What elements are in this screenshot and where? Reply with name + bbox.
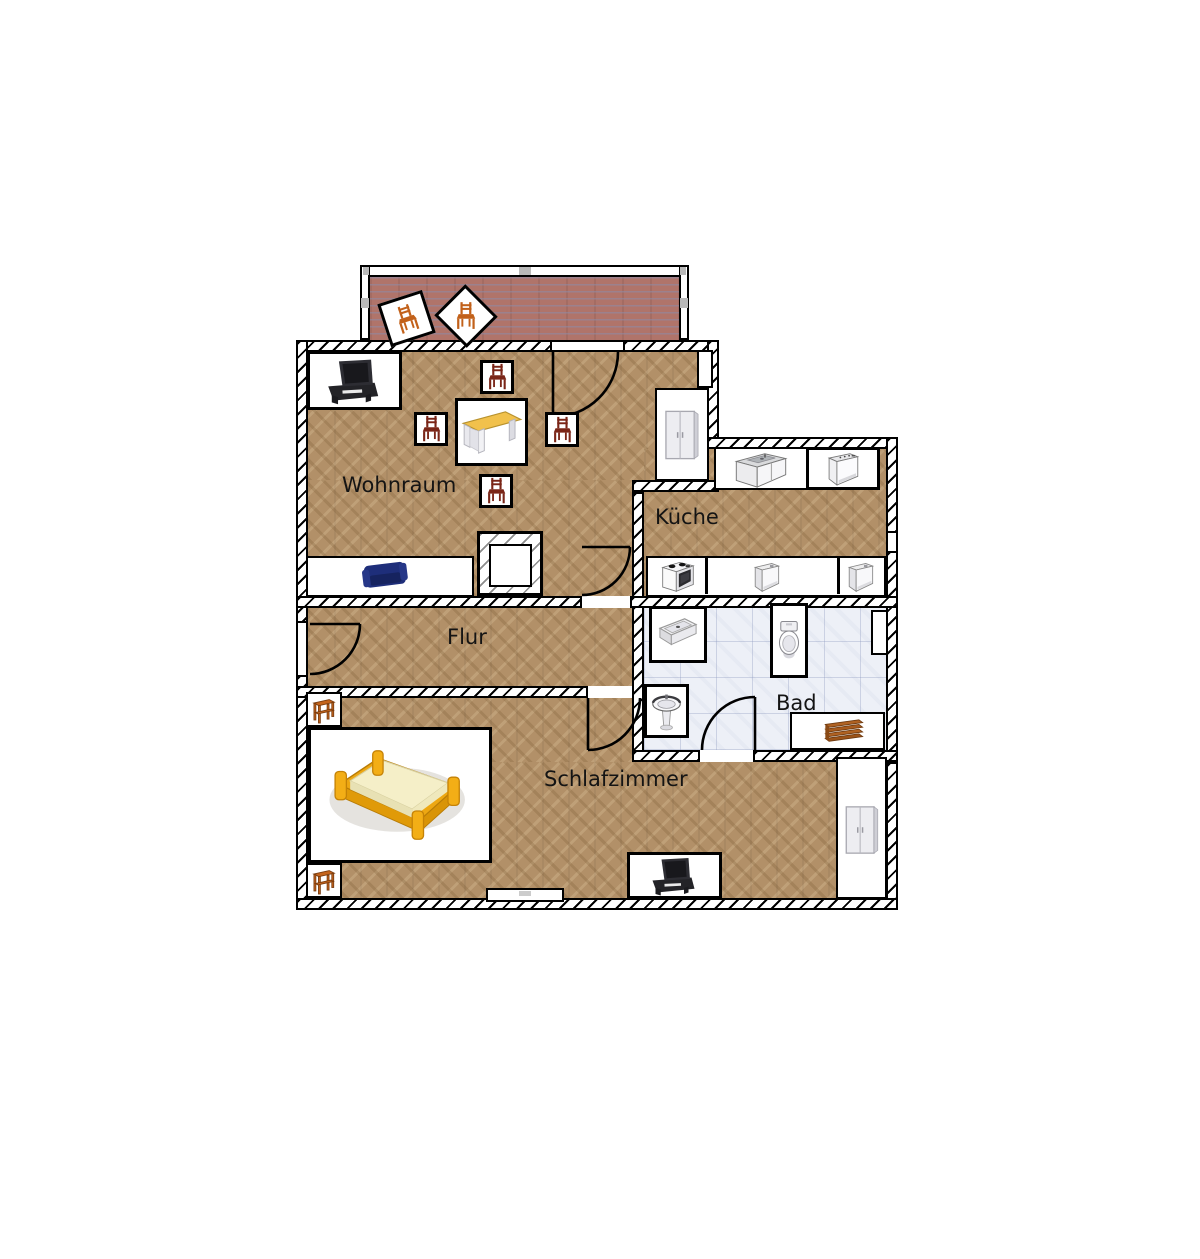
wall-niche <box>697 350 713 388</box>
floor-plan: Wohnraum Küche Flur Bad Schlafzimmer <box>0 0 1200 1259</box>
wash-basin[interactable] <box>644 684 689 738</box>
chair-icon <box>454 301 478 331</box>
room-label-kueche: Küche <box>655 505 719 529</box>
wall-kueche-step <box>632 480 719 492</box>
counter-divider <box>705 558 708 594</box>
room-label-bad: Bad <box>776 691 817 715</box>
desk-icon <box>461 408 523 456</box>
dishwasher-icon <box>823 450 863 487</box>
balcony-door-threshold[interactable] <box>552 340 623 352</box>
chair[interactable] <box>545 412 579 447</box>
counter-divider <box>837 558 840 594</box>
dishwasher[interactable] <box>806 447 880 490</box>
radiator-icon <box>821 717 867 745</box>
chair[interactable] <box>480 360 514 394</box>
toilet[interactable] <box>770 603 808 678</box>
stove-icon <box>655 559 701 593</box>
wardrobe[interactable] <box>836 757 887 899</box>
chair-icon <box>551 416 574 444</box>
radiator[interactable] <box>790 712 885 750</box>
nightstand[interactable] <box>306 863 342 898</box>
wall-wohnraum-flur-a <box>296 596 582 608</box>
bedroom-window[interactable] <box>486 888 564 902</box>
bed[interactable] <box>308 727 492 863</box>
wall-niche <box>871 610 888 655</box>
kitchen-counter-strip[interactable] <box>646 556 886 597</box>
railing-post <box>680 267 686 275</box>
room-label-schlafzimmer: Schlafzimmer <box>544 767 688 791</box>
chair[interactable] <box>414 412 448 446</box>
nightstand-icon <box>311 867 337 895</box>
entry-door-opening[interactable] <box>296 623 308 675</box>
tv-sideboard[interactable] <box>627 852 722 899</box>
chair-icon <box>420 415 443 443</box>
railing-post <box>361 298 369 308</box>
kitchen-window[interactable] <box>886 533 898 551</box>
sofa-icon <box>360 560 412 593</box>
railing-post <box>680 298 688 308</box>
appliance-icon <box>750 560 783 593</box>
nightstand[interactable] <box>306 692 342 727</box>
wardrobe[interactable] <box>655 388 709 481</box>
chimney-block <box>477 531 543 596</box>
toilet-icon <box>776 620 802 662</box>
chair[interactable] <box>479 474 513 508</box>
tv-sideboard-icon <box>643 855 707 897</box>
appliance-icon <box>844 560 877 593</box>
chimney-shaft <box>489 544 532 587</box>
nightstand-icon <box>311 696 337 724</box>
sofa[interactable] <box>306 556 474 597</box>
wardrobe-icon <box>844 805 880 855</box>
railing-post <box>363 267 369 275</box>
window-sash-mark <box>519 891 531 896</box>
tv-sideboard[interactable] <box>307 351 402 410</box>
bed-icon <box>313 732 487 859</box>
wall-mid-vertical <box>632 492 644 762</box>
kitchen-sink-cabinet[interactable] <box>714 447 808 490</box>
wall-right-b <box>886 551 898 762</box>
wall-bottom <box>296 898 898 910</box>
wardrobe-icon <box>665 409 699 461</box>
wall-right-a <box>886 437 898 533</box>
shower[interactable] <box>649 606 707 663</box>
desk[interactable] <box>455 398 528 466</box>
sink-cabinet-icon <box>732 450 790 488</box>
chair-icon <box>486 363 509 391</box>
wall-schlaf-right <box>886 762 898 910</box>
chair-icon <box>485 477 508 505</box>
railing-post <box>519 267 531 275</box>
room-label-wohnraum: Wohnraum <box>342 473 456 497</box>
wall-bad-bottom-a <box>632 750 700 762</box>
shower-icon <box>656 615 700 655</box>
room-label-flur: Flur <box>447 625 487 649</box>
tv-sideboard-icon <box>319 356 391 406</box>
chair-icon <box>390 301 422 337</box>
wash-basin-icon <box>650 691 683 732</box>
